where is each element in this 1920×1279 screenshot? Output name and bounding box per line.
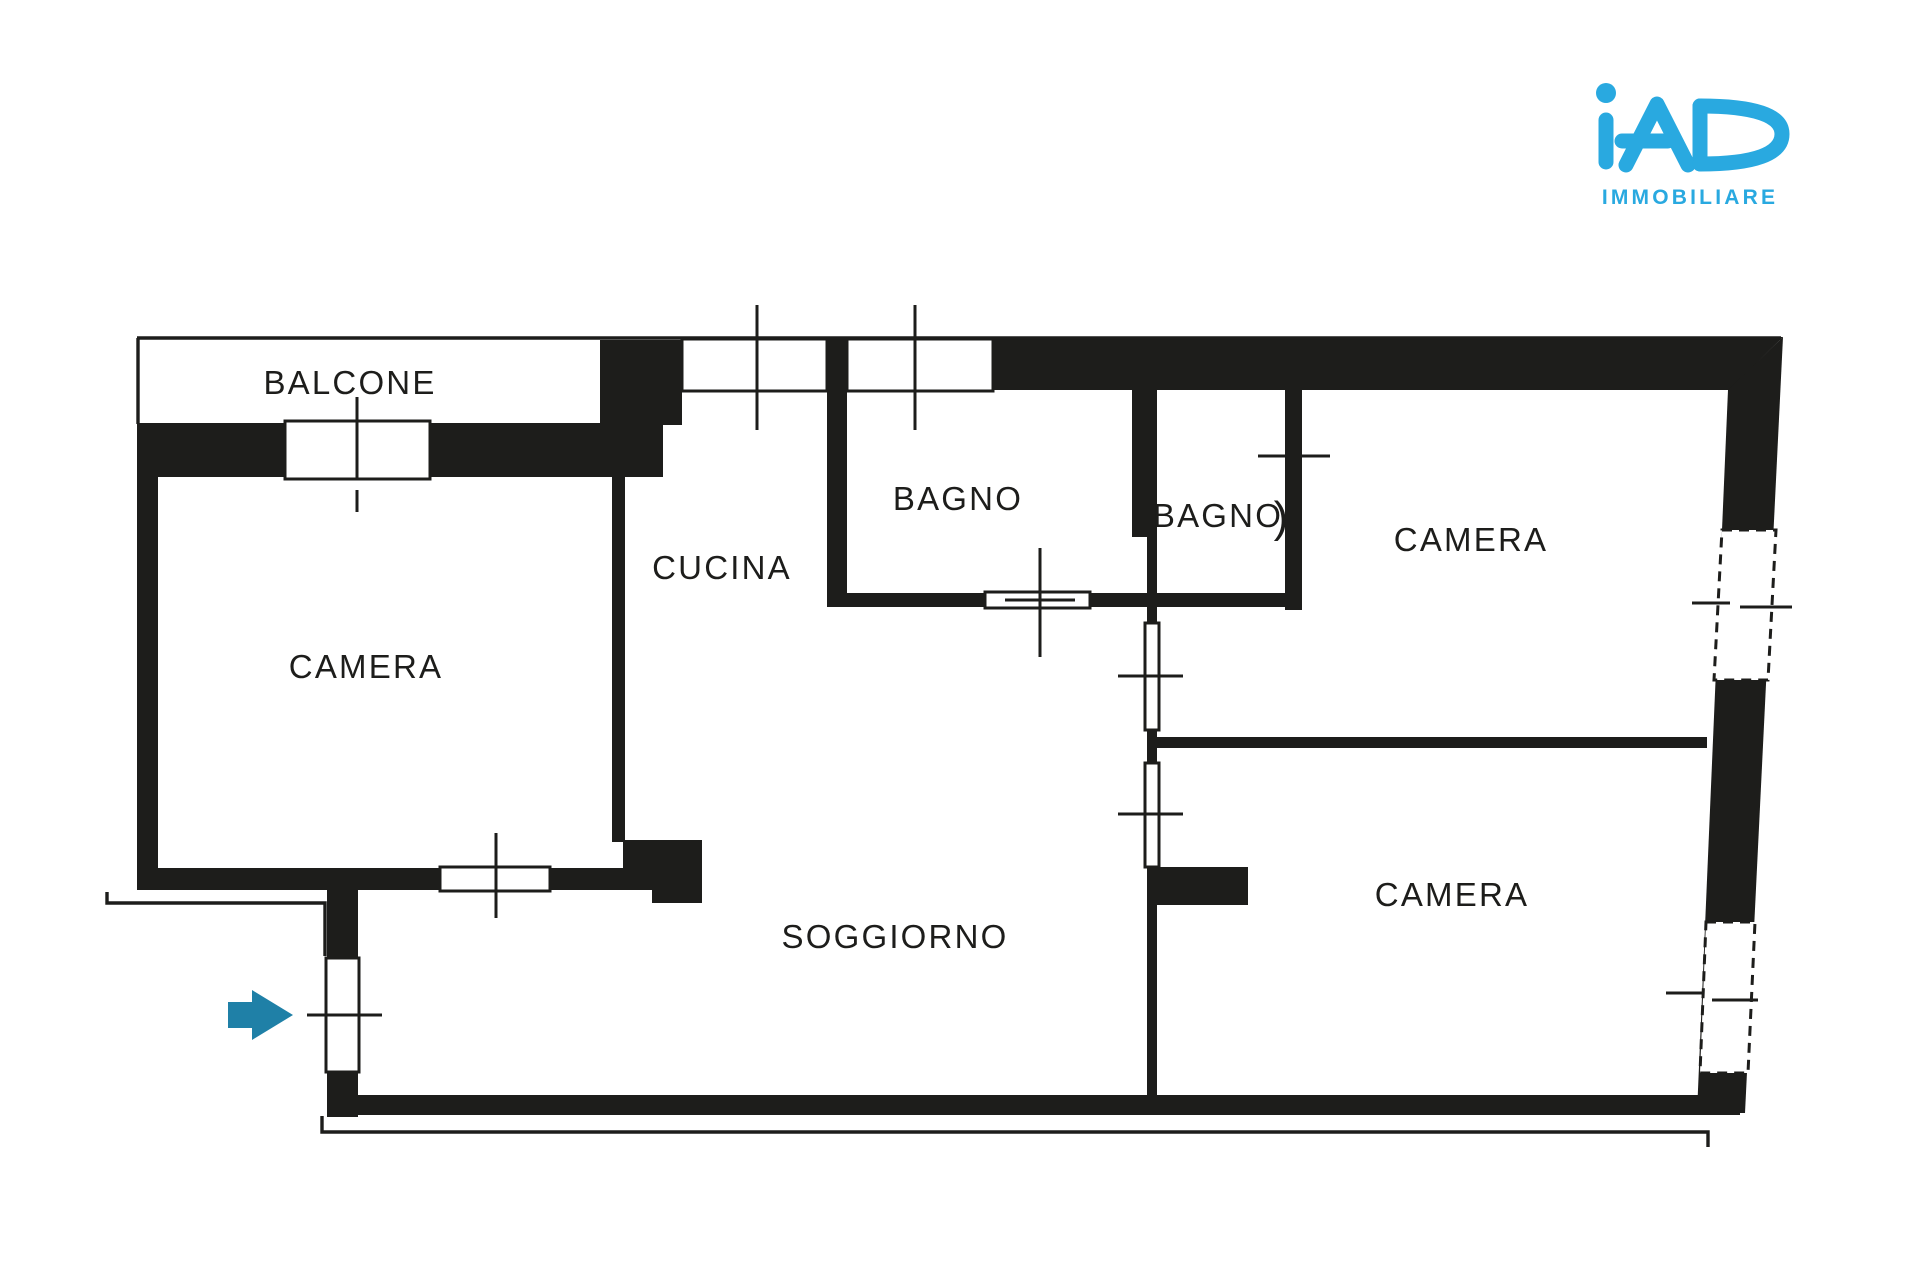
window-bagno — [847, 339, 993, 391]
wall-entrance-upper — [327, 890, 358, 958]
wall-bagno-divider-lower — [1147, 537, 1157, 593]
outline-bottom-offset — [322, 1116, 1708, 1147]
wall-stub-soggiorno — [1157, 867, 1248, 905]
wall-entrance-lower — [327, 1072, 358, 1117]
tick-marks — [307, 305, 1792, 1015]
entrance-arrow-icon — [228, 990, 293, 1040]
floorplan-page: BALCONE CAMERA CUCINA BAGNO BAGNO CAMERA… — [0, 0, 1920, 1279]
wall-stub-cucina-step — [652, 885, 702, 903]
wall-stub-cucina — [623, 840, 702, 890]
wall-bagno1-bottom — [827, 593, 985, 607]
window-cucina — [682, 339, 827, 391]
wall-balcony-step — [600, 340, 682, 425]
logo-d-bowl — [1700, 106, 1782, 164]
logo-i-dot — [1596, 83, 1616, 103]
wall-camera-left-bottom-a — [137, 868, 440, 890]
window-right-upper — [1714, 530, 1776, 680]
wall-camera-right-divider — [1157, 737, 1707, 748]
wall-cucina-bagno — [827, 390, 847, 607]
window-right-lower — [1700, 922, 1755, 1073]
iad-logo: IMMOBILIARE — [1596, 83, 1782, 209]
outline-entrance-landing — [107, 892, 325, 956]
wall-left — [137, 423, 158, 890]
label-cucina: CUCINA — [652, 549, 792, 586]
door-swing-arc: ) — [1274, 493, 1289, 542]
label-bagno-2: BAGNO — [1153, 497, 1283, 534]
wall-cucina-left — [612, 477, 625, 842]
label-balcone: BALCONE — [263, 364, 436, 401]
wall-center-divider-c — [1147, 867, 1157, 1095]
wall-center-divider-b — [1147, 730, 1157, 763]
wall-bagno2-bottom — [1090, 593, 1302, 607]
wall-center-divider-a — [1147, 607, 1157, 623]
label-camera-bottom-right: CAMERA — [1375, 876, 1529, 913]
wall-camera-left-bottom-b — [550, 868, 623, 890]
label-camera-left: CAMERA — [289, 648, 443, 685]
label-bagno-1: BAGNO — [893, 480, 1023, 517]
label-camera-top-right: CAMERA — [1394, 521, 1548, 558]
label-soggiorno: SOGGIORNO — [782, 918, 1009, 955]
floorplan-canvas: BALCONE CAMERA CUCINA BAGNO BAGNO CAMERA… — [0, 0, 1920, 1279]
logo-subtitle: IMMOBILIARE — [1602, 186, 1778, 209]
wall-bottom — [327, 1095, 1740, 1115]
